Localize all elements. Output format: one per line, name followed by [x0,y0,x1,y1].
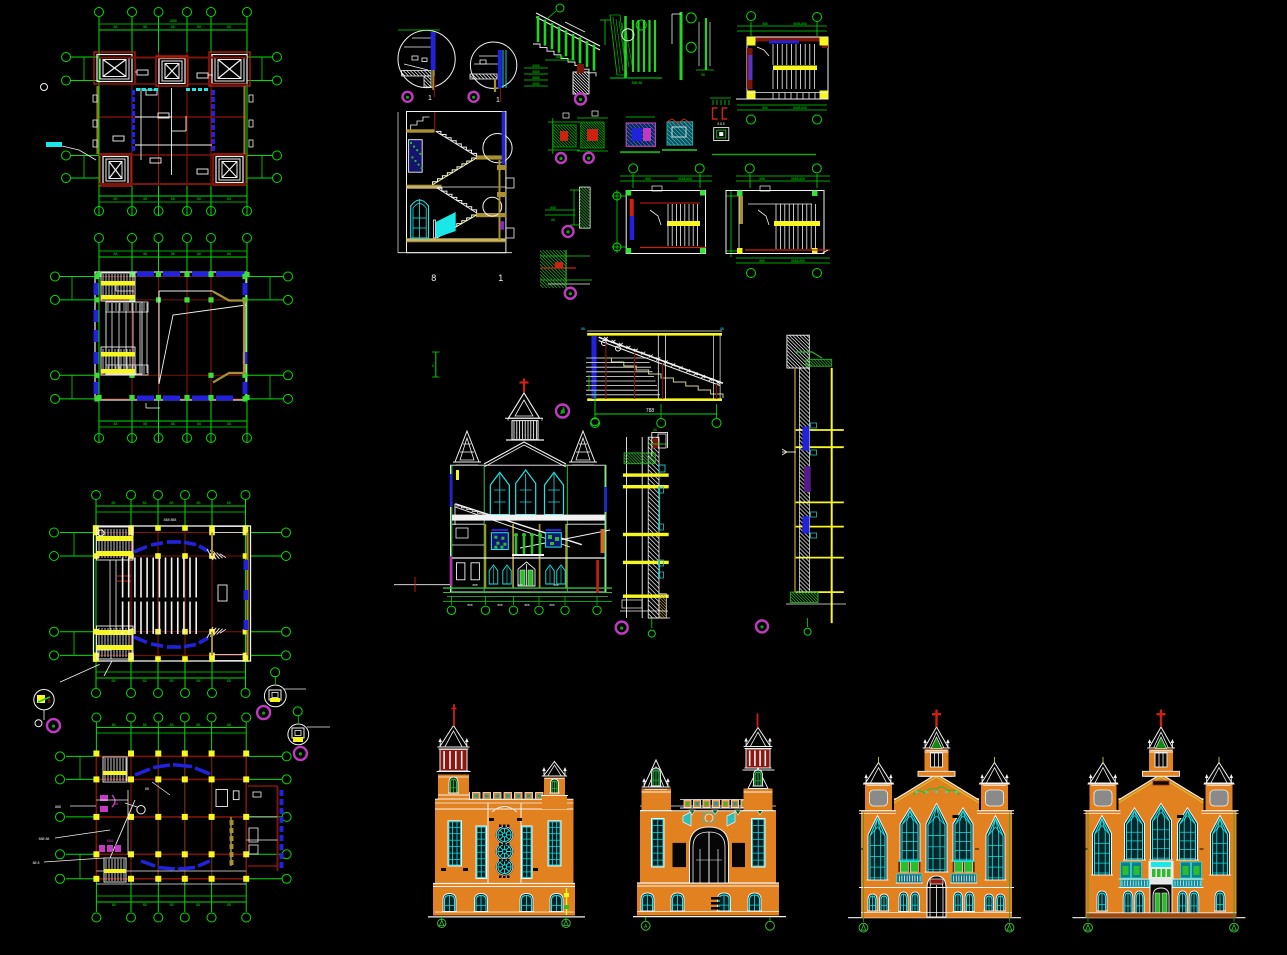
svg-text:88: 88 [114,25,118,29]
svg-text:8888: 8888 [532,76,539,80]
svg-text:888: 888 [524,603,529,607]
svg-text:8: 8 [431,273,436,283]
svg-text:88: 88 [227,197,231,201]
svg-text:8888-888: 8888-888 [791,259,805,263]
svg-text:88: 88 [143,252,147,256]
svg-text:88: 88 [143,723,147,727]
svg-text:88: 88 [143,501,147,505]
svg-text:8888-888: 8888-888 [793,106,807,110]
svg-text:88: 88 [171,25,175,29]
svg-text:1: 1 [428,95,432,102]
svg-text:888: 888 [497,603,502,607]
svg-text:88 8: 88 8 [33,861,40,865]
svg-text:888: 888 [759,177,765,181]
svg-text:88: 88 [114,197,118,201]
svg-text:788: 788 [646,408,655,414]
svg-text:88: 88 [227,252,231,256]
svg-text:1: 1 [498,273,503,283]
svg-text:88: 88 [143,903,147,907]
svg-text:88: 88 [197,252,201,256]
svg-text:88: 88 [143,25,147,29]
svg-text:88: 88 [581,327,585,331]
svg-text:8888: 8888 [556,55,564,59]
svg-text:88: 88 [112,903,116,907]
svg-text:88: 88 [227,903,231,907]
svg-text:888: 888 [55,805,61,809]
svg-text:88: 88 [145,787,149,791]
svg-text:88: 88 [227,422,231,426]
svg-text:88: 88 [197,25,201,29]
svg-text:88: 88 [114,252,118,256]
svg-text:8888: 8888 [532,64,539,68]
svg-text:88: 88 [197,197,201,201]
svg-text:88: 88 [196,723,200,727]
svg-text:888 888: 888 888 [164,518,177,522]
svg-text:88: 88 [227,723,231,727]
svg-text:888: 888 [467,603,472,607]
svg-text:888: 888 [759,259,765,263]
svg-text:888: 888 [762,106,768,110]
svg-text:8888-888: 8888-888 [678,177,692,181]
svg-text:888: 888 [645,177,651,181]
svg-text:88: 88 [112,723,116,727]
svg-text:88: 88 [170,903,174,907]
svg-text:88: 88 [170,679,174,683]
svg-text:88: 88 [112,679,116,683]
svg-text:888: 888 [550,206,556,210]
svg-text:88: 88 [551,218,555,222]
svg-text:888: 888 [553,583,558,587]
svg-text:8888-888: 8888-888 [793,22,807,26]
svg-text:8: 8 [48,699,51,705]
svg-text:8 8 8: 8 8 8 [717,122,724,126]
svg-text:88: 88 [170,501,174,505]
svg-text:888: 888 [472,583,477,587]
svg-text:88: 88 [112,501,116,505]
svg-text:88: 88 [171,422,175,426]
svg-text:888: 888 [107,838,114,843]
svg-text:88: 88 [701,73,705,77]
svg-text:88: 88 [170,723,174,727]
svg-text:888: 888 [549,603,554,607]
svg-text:888 88: 888 88 [632,81,643,85]
svg-text:88: 88 [171,252,175,256]
svg-text:88: 88 [196,903,200,907]
svg-text:88: 88 [197,679,201,683]
svg-text:88: 88 [171,197,175,201]
svg-text:88: 88 [114,801,119,806]
svg-text:88: 88 [227,501,231,505]
svg-text:888: 888 [517,583,522,587]
svg-text:88: 88 [143,679,147,683]
svg-text:88: 88 [227,25,231,29]
svg-text:88: 88 [143,197,147,201]
svg-text:8: 8 [432,364,434,368]
svg-text:88: 88 [653,428,657,432]
svg-text:88: 88 [114,422,118,426]
svg-text:88: 88 [143,422,147,426]
svg-text:88: 88 [720,327,724,331]
svg-text:8888-888: 8888-888 [791,177,805,181]
svg-text:88: 88 [227,679,231,683]
svg-text:888: 888 [762,22,768,26]
svg-text:A: A [644,924,648,930]
svg-text:8888: 8888 [532,82,539,86]
svg-text:888 88: 888 88 [39,837,50,841]
svg-text:88: 88 [197,501,201,505]
svg-text:1888: 1888 [169,19,177,23]
svg-text:1: 1 [496,97,500,104]
svg-text:88: 88 [197,422,201,426]
svg-text:8888: 8888 [532,70,539,74]
